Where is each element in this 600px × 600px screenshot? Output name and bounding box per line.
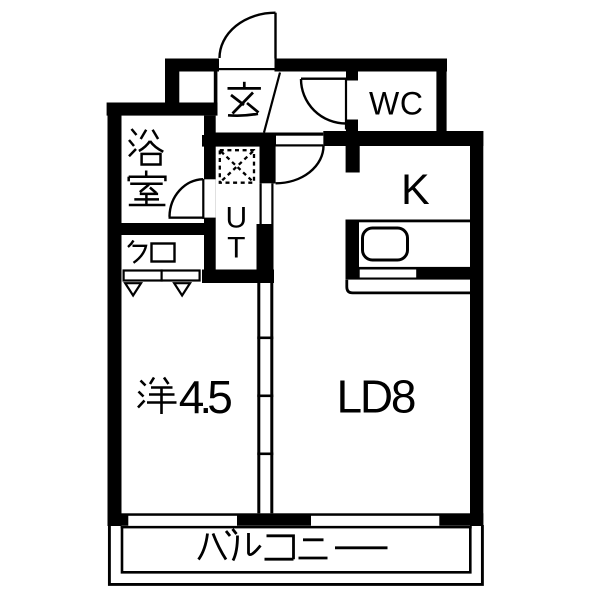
svg-text:U: U [225,202,247,235]
svg-text:K: K [401,166,430,214]
svg-text:WC: WC [369,86,423,122]
svg-text:T: T [227,232,245,265]
svg-text:LD8: LD8 [337,371,417,423]
svg-text:4.5: 4.5 [179,371,233,423]
